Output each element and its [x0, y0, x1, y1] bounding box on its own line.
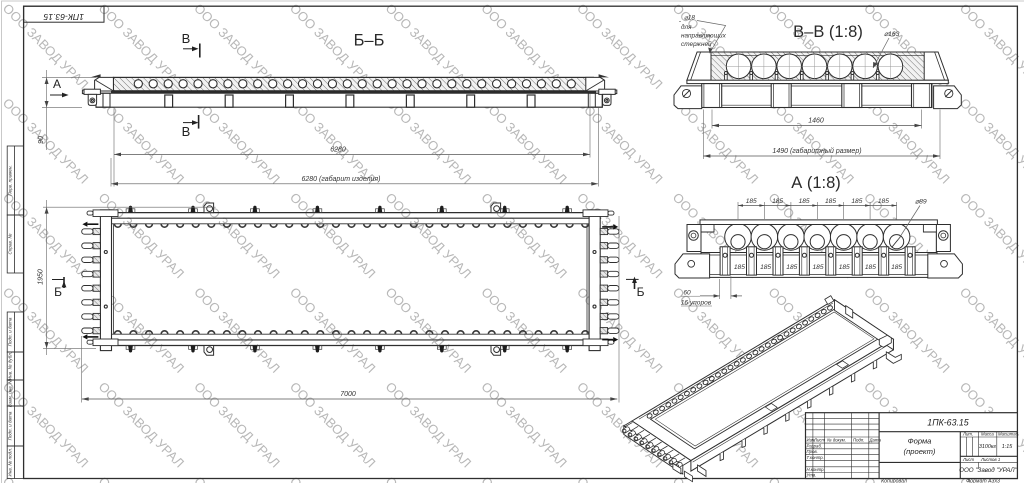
svg-text:А: А [53, 77, 61, 91]
svg-text:Подп.: Подп. [853, 438, 864, 443]
svg-text:185: 185 [878, 198, 889, 205]
svg-text:Масштаб: Масштаб [998, 432, 1019, 437]
svg-text:Пров.: Пров. [807, 449, 818, 454]
svg-text:Инв. № дубл.: Инв. № дубл. [8, 352, 13, 380]
svg-text:1ПК-63.15: 1ПК-63.15 [927, 418, 969, 428]
svg-text:90: 90 [38, 136, 45, 144]
svg-text:Разраб.: Разраб. [807, 443, 823, 448]
svg-text:№ докум.: № докум. [827, 438, 846, 443]
svg-text:Утв.: Утв. [807, 473, 817, 478]
svg-text:В: В [182, 124, 191, 139]
svg-text:Б–Б: Б–Б [354, 32, 385, 50]
svg-text:Формат А3х3: Формат А3х3 [966, 479, 1000, 483]
svg-text:Б: Б [54, 285, 62, 299]
svg-text:1ПК-63.15: 1ПК-63.15 [43, 12, 84, 22]
svg-text:60: 60 [683, 290, 691, 297]
svg-text:Форма: Форма [908, 437, 932, 446]
svg-text:Подп. и дата: Подп. и дата [8, 411, 13, 440]
svg-text:ООО "Завод "УРАЛ": ООО "Завод "УРАЛ" [959, 467, 1017, 474]
svg-text:Перв. примен.: Перв. примен. [8, 165, 13, 196]
svg-text:Масса: Масса [981, 432, 994, 437]
svg-text:для: для [681, 23, 692, 31]
svg-text:185: 185 [799, 198, 810, 205]
svg-text:В–В (1:8): В–В (1:8) [793, 23, 863, 41]
svg-text:Н.контр.: Н.контр. [807, 467, 825, 472]
svg-text:185: 185 [865, 264, 876, 271]
svg-text:Дата: Дата [869, 438, 882, 443]
svg-text:185: 185 [839, 264, 850, 271]
svg-text:185: 185 [825, 198, 836, 205]
svg-text:⌀18: ⌀18 [684, 15, 695, 22]
svg-text:Подп. и дата: Подп. и дата [8, 317, 13, 346]
svg-text:185: 185 [760, 264, 771, 271]
svg-text:Справ. №: Справ. № [8, 234, 13, 255]
svg-text:16 упоров: 16 упоров [681, 300, 712, 307]
svg-text:Б: Б [637, 285, 645, 299]
svg-text:Взам. инв. №: Взам. инв. № [8, 379, 13, 407]
svg-text:185: 185 [851, 198, 862, 205]
svg-text:185: 185 [812, 264, 823, 271]
svg-text:6280: 6280 [330, 146, 346, 153]
svg-text:1490 (габаритный размер): 1490 (габаритный размер) [772, 147, 861, 155]
svg-text:185: 185 [746, 198, 757, 205]
svg-text:А (1:8): А (1:8) [791, 174, 841, 192]
svg-text:⌀89: ⌀89 [915, 199, 927, 206]
svg-text:(проект): (проект) [904, 447, 936, 456]
svg-text:Инв. № подл.: Инв. № подл. [8, 448, 13, 477]
svg-text:Копировал: Копировал [881, 479, 907, 483]
svg-text:185: 185 [734, 264, 745, 271]
svg-text:Лист: Лист [962, 457, 974, 462]
svg-text:185: 185 [772, 198, 783, 205]
svg-text:Лист: Лист [813, 438, 825, 443]
svg-text:Лит.: Лит. [962, 432, 973, 437]
svg-text:7000: 7000 [340, 391, 356, 398]
svg-text:185: 185 [891, 264, 902, 271]
svg-text:185: 185 [786, 264, 797, 271]
svg-text:3100кг: 3100кг [979, 444, 997, 450]
svg-text:1460: 1460 [808, 118, 824, 125]
svg-text:Листов 1: Листов 1 [980, 457, 1001, 462]
svg-text:Т.контр.: Т.контр. [807, 455, 824, 460]
svg-text:стержней: стержней [681, 40, 712, 48]
svg-text:1:15: 1:15 [1002, 444, 1013, 450]
svg-text:6280 (габарит изделия): 6280 (габарит изделия) [301, 175, 380, 183]
svg-text:⌀163: ⌀163 [884, 31, 900, 38]
svg-text:В: В [182, 31, 191, 46]
svg-text:1950: 1950 [38, 269, 45, 285]
